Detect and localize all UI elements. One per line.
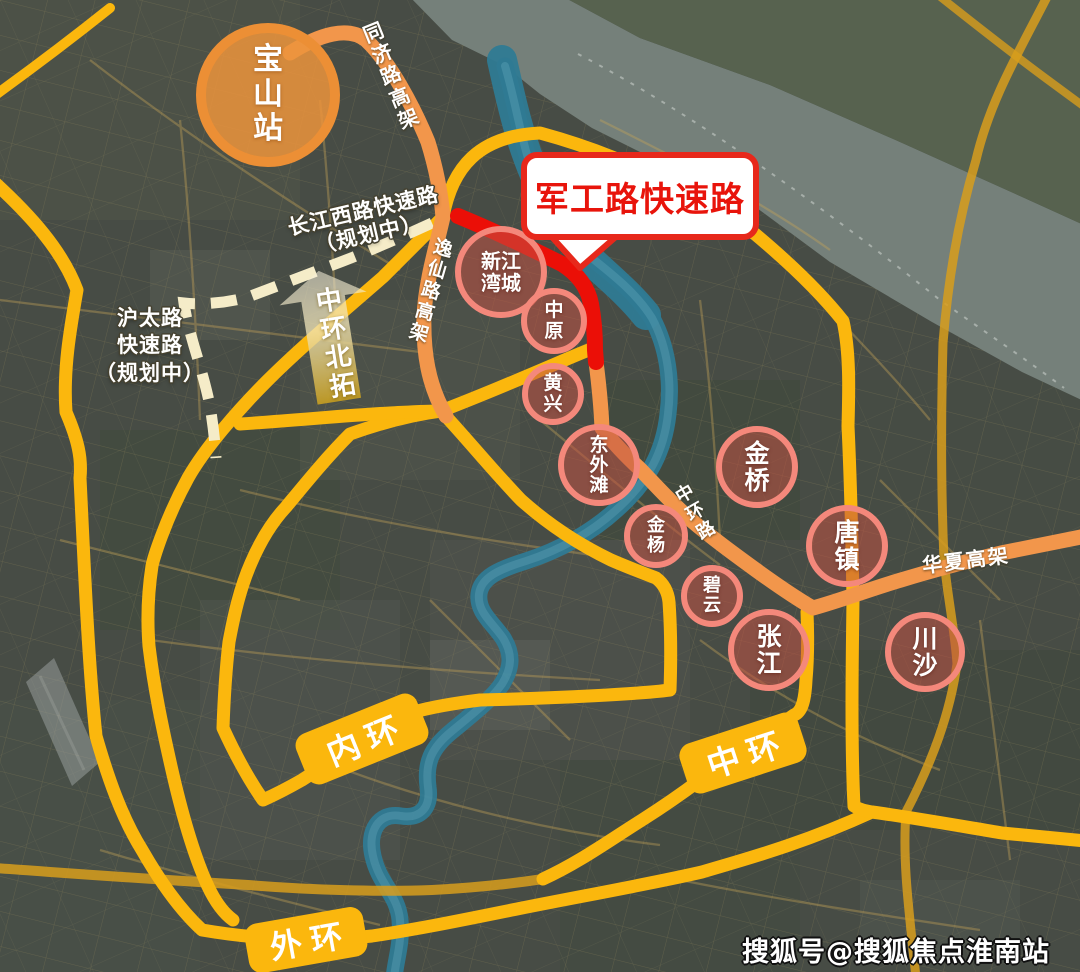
- station-label-biyun: 碧 云: [703, 576, 721, 616]
- station-circle-jinyang: 金 杨: [624, 504, 688, 568]
- station-circle-baoshan: 宝 山 站: [196, 23, 340, 167]
- watermark: 搜狐号@搜狐焦点淮南站: [742, 930, 1050, 969]
- station-label-tangzhen: 唐 镇: [834, 519, 859, 574]
- station-label-xinjiangwancheng: 新江 湾城: [481, 250, 521, 295]
- station-circle-jinqiao: 金 桥: [716, 426, 798, 508]
- station-circle-zhongyuan: 中 原: [521, 288, 587, 354]
- station-label-jinyang: 金 杨: [647, 516, 665, 556]
- station-label-jinqiao: 金 桥: [744, 440, 769, 495]
- station-label-zhangjiang: 张 江: [756, 623, 781, 678]
- station-circle-huangxing: 黄 兴: [522, 363, 584, 425]
- station-circle-dongwaitan: 东 外 滩: [558, 424, 640, 506]
- station-label-huangxing: 黄 兴: [543, 373, 562, 416]
- station-circle-chuansha: 川 沙: [885, 612, 965, 692]
- station-circle-tangzhen: 唐 镇: [806, 505, 888, 587]
- station-label-zhongyuan: 中 原: [544, 300, 563, 343]
- station-label-dongwaitan: 东 外 滩: [589, 435, 608, 495]
- station-label-chuansha: 川 沙: [912, 625, 937, 680]
- road-label-hutai-planned: 沪太路 快速路 （规划中）: [95, 305, 205, 387]
- station-circle-biyun: 碧 云: [681, 565, 743, 627]
- station-circle-zhangjiang: 张 江: [728, 609, 810, 691]
- jungong-callout-text: 军工路快速路: [535, 172, 745, 221]
- station-label-baoshan: 宝 山 站: [253, 43, 283, 147]
- map-canvas: [0, 0, 1080, 972]
- shanghai-expressway-map: 宝 山 站 新江 湾城 中 原 黄 兴 东 外 滩 金 杨 碧 云 金 桥 唐 …: [0, 0, 1080, 972]
- jungong-callout: 军工路快速路: [521, 152, 759, 240]
